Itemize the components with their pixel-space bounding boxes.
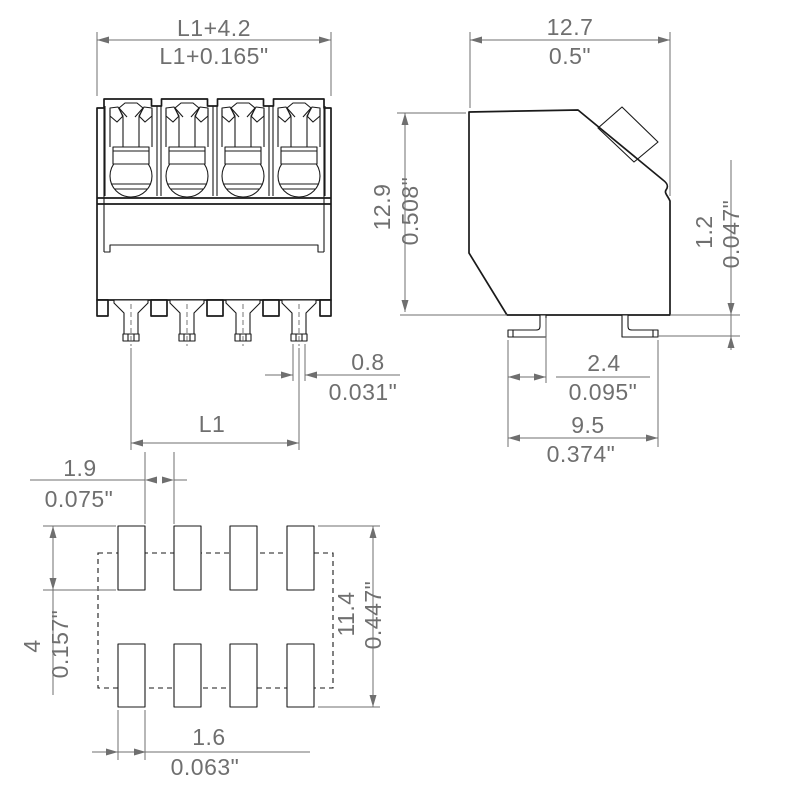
dim-text: 0.5" [549, 43, 591, 69]
dim-text: 1.9 [63, 455, 96, 481]
dim-text: 12.7 [547, 14, 594, 40]
dim-text: 0.075" [45, 486, 114, 512]
dim-text: 12.9 [369, 184, 395, 231]
dim-text: L1+0.165" [159, 43, 268, 69]
pad [230, 644, 257, 707]
actuator-button [119, 103, 143, 147]
dim-text: 9.5 [571, 412, 604, 438]
dim-text: 4 [19, 639, 45, 652]
pad [174, 526, 201, 590]
dim-text: 0.508" [397, 177, 423, 246]
dim-text: 11.4 [333, 591, 359, 636]
dim-pad-height: 4 0.157" [19, 526, 116, 695]
pads-top-row [118, 526, 314, 590]
pin [282, 300, 316, 346]
dim-text: 0.157" [47, 610, 73, 679]
smt-foot-left [508, 315, 546, 337]
dim-pad-rows-span: 11.4 0.447" [318, 526, 386, 707]
dim-text: 1.6 [192, 724, 225, 750]
pad [118, 526, 145, 590]
dim-text: 0.063" [171, 754, 240, 780]
dim-text: 2.4 [587, 350, 620, 376]
pads-bottom-row [118, 644, 314, 707]
clamp-body [113, 147, 149, 164]
pad [118, 644, 145, 707]
pad [174, 644, 201, 707]
drawing-canvas: L1+4.2 L1+0.165" 12.7 0.5" 12.9 0.508" [0, 0, 800, 800]
dim-text: L1+4.2 [177, 15, 251, 41]
dim-pin-width: 0.8 0.031" [265, 344, 400, 405]
dim-text: L1 [199, 411, 226, 437]
front-view [97, 99, 331, 346]
dim-text: 0.374" [547, 441, 616, 467]
dim-text: 0.8 [351, 349, 384, 375]
front-flange-right [320, 300, 331, 316]
dim-text: 0.447" [360, 581, 386, 650]
footprint-view [98, 526, 333, 707]
dim-pad-gap: 1.9 0.075" [30, 452, 187, 524]
front-tab [151, 300, 167, 316]
dim-pin-span: L1 [131, 348, 299, 450]
technical-drawing: L1+4.2 L1+0.165" 12.7 0.5" 12.9 0.508" [0, 0, 800, 800]
dim-side-height: 12.9 0.508" [369, 113, 466, 312]
dim-text: 0.031" [329, 379, 398, 405]
pad [287, 644, 314, 707]
pin [114, 300, 148, 346]
pad [230, 526, 257, 590]
pad [287, 526, 314, 590]
pin [170, 300, 204, 346]
front-tab [207, 300, 223, 316]
side-view [469, 107, 670, 337]
dim-text: 0.095" [569, 379, 638, 405]
side-housing-outline [469, 110, 670, 315]
pin [226, 300, 260, 346]
dim-front-width: L1+4.2 L1+0.165" [97, 15, 331, 96]
dim-text: 0.047" [718, 200, 744, 269]
dim-pad-width: 1.6 0.063" [92, 710, 310, 780]
dim-foot-height: 1.2 0.047" [691, 160, 744, 350]
dim-text: 1.2 [691, 215, 717, 248]
front-flange-left [97, 300, 108, 316]
front-tab [263, 300, 279, 316]
